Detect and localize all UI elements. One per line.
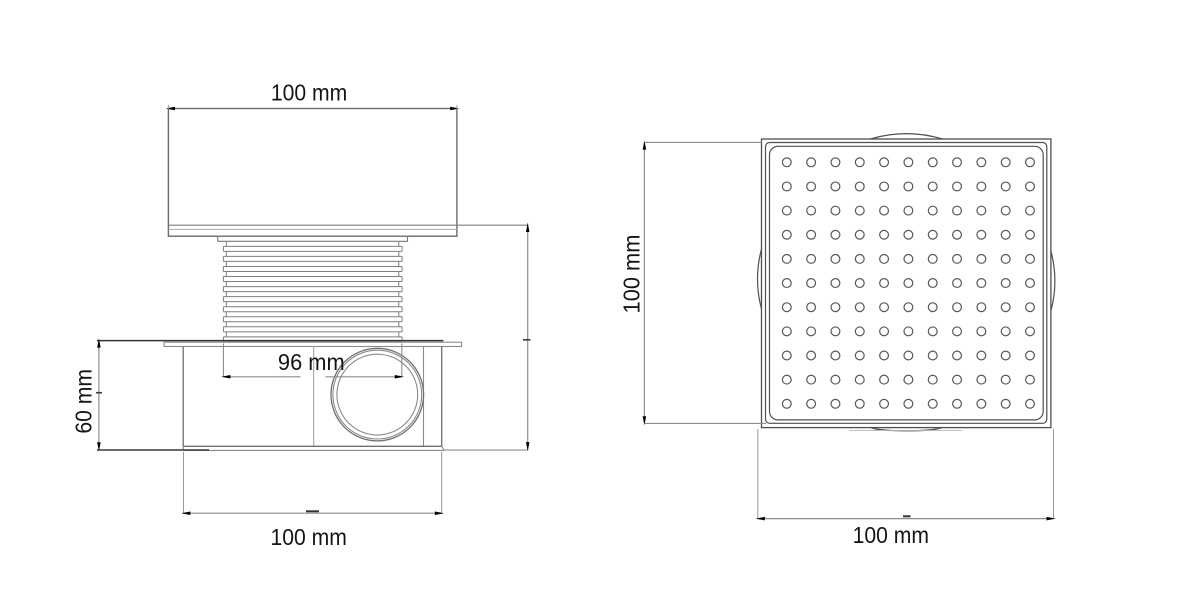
svg-text:96 mm: 96 mm bbox=[278, 349, 345, 375]
svg-text:100 mm: 100 mm bbox=[619, 235, 645, 314]
svg-text:100 mm: 100 mm bbox=[271, 79, 347, 105]
svg-text:100 mm: 100 mm bbox=[271, 524, 347, 550]
svg-text:60 mm: 60 mm bbox=[71, 369, 97, 434]
svg-text:100 mm: 100 mm bbox=[853, 522, 929, 548]
